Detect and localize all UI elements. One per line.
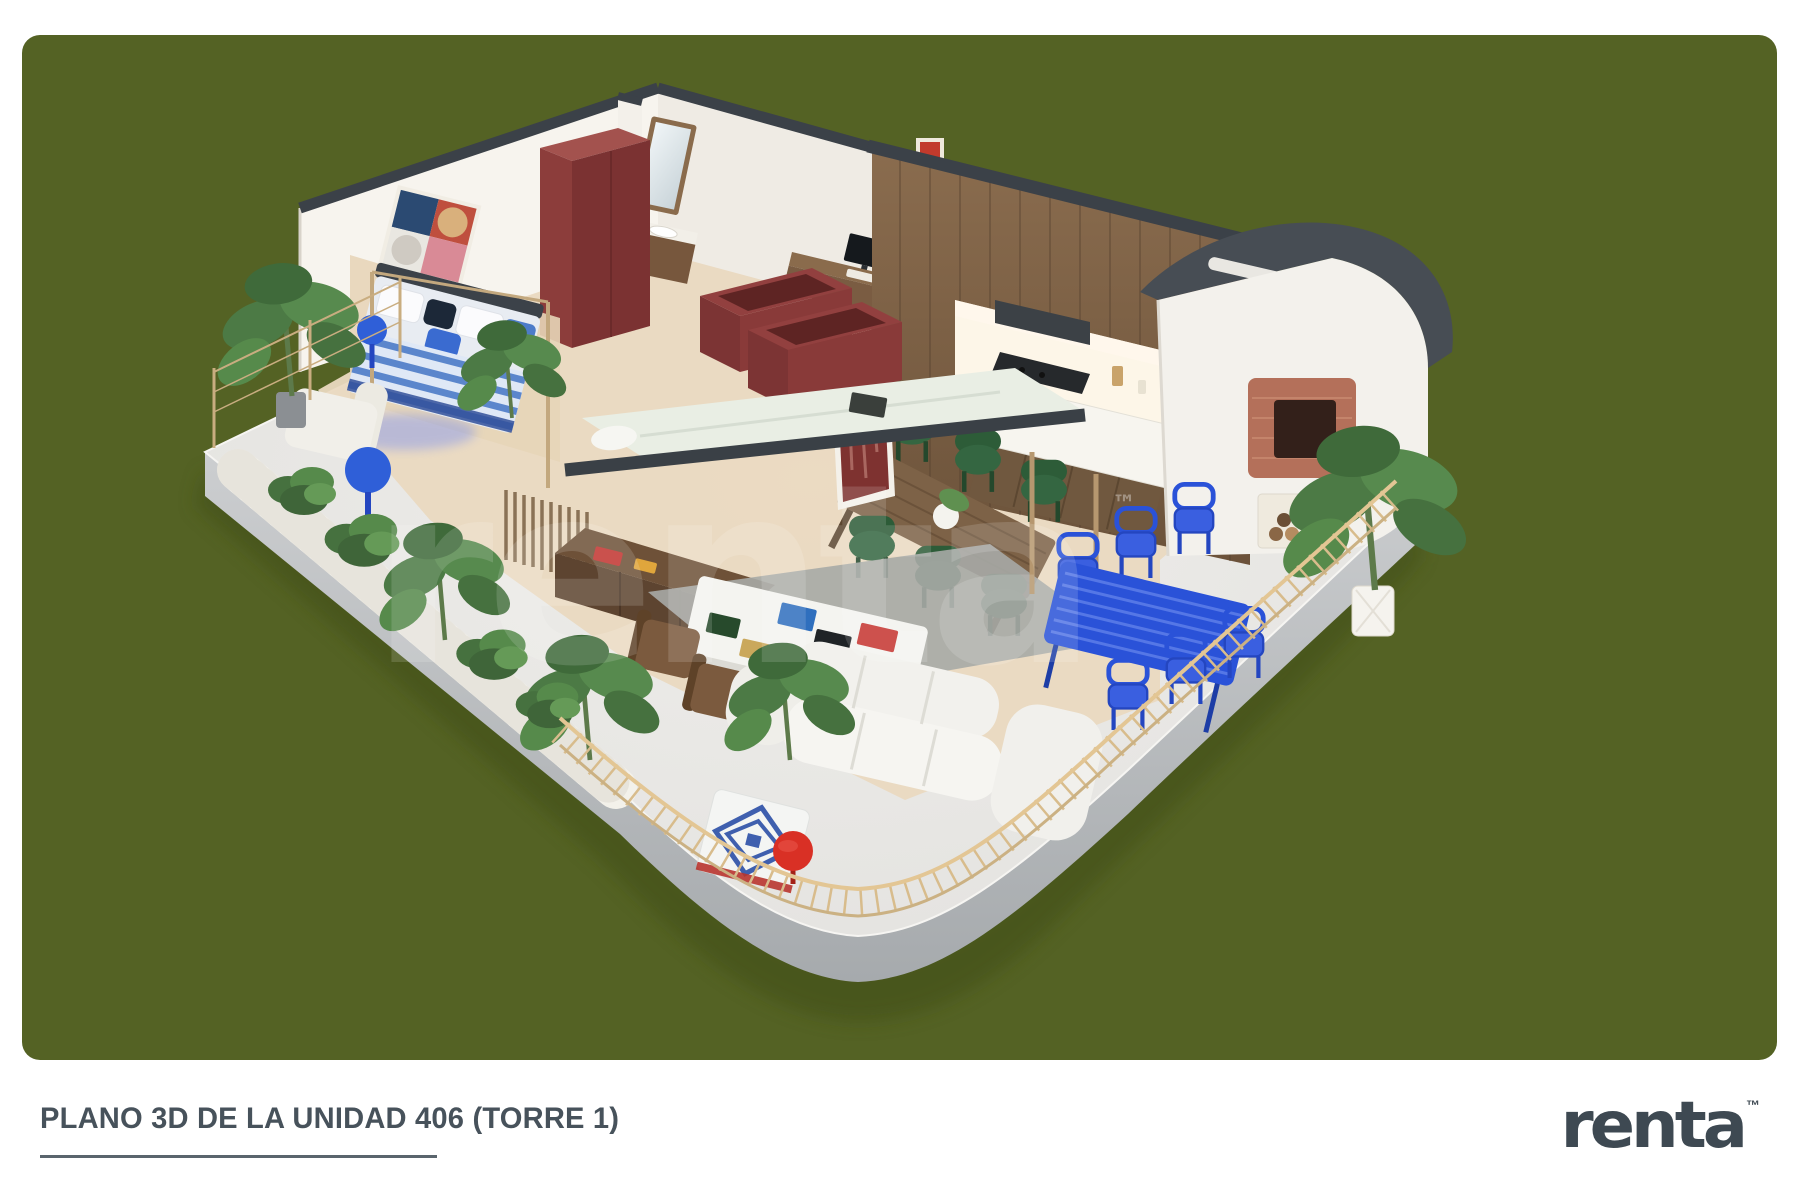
brand-logo: renta™ — [1500, 1092, 1760, 1159]
watermark-trademark: ™ — [1112, 490, 1136, 518]
screenshot-root: renta ™ PLANO 3D DE LA UNIDAD 406 (TORRE… — [0, 0, 1800, 1202]
watermark-text: renta — [370, 430, 1089, 721]
caption: PLANO 3D DE LA UNIDAD 406 (TORRE 1) — [40, 1102, 637, 1158]
page-title: PLANO 3D DE LA UNIDAD 406 (TORRE 1) — [40, 1102, 619, 1136]
brand-logo-text: renta — [1561, 1093, 1744, 1157]
caption-underline — [40, 1155, 437, 1158]
wardrobe — [540, 128, 650, 348]
floorplan-3d-render: renta ™ — [0, 0, 1800, 1202]
brand-trademark: ™ — [1746, 1097, 1760, 1113]
watermark: renta ™ — [370, 430, 1136, 721]
plant-pot — [276, 392, 306, 428]
